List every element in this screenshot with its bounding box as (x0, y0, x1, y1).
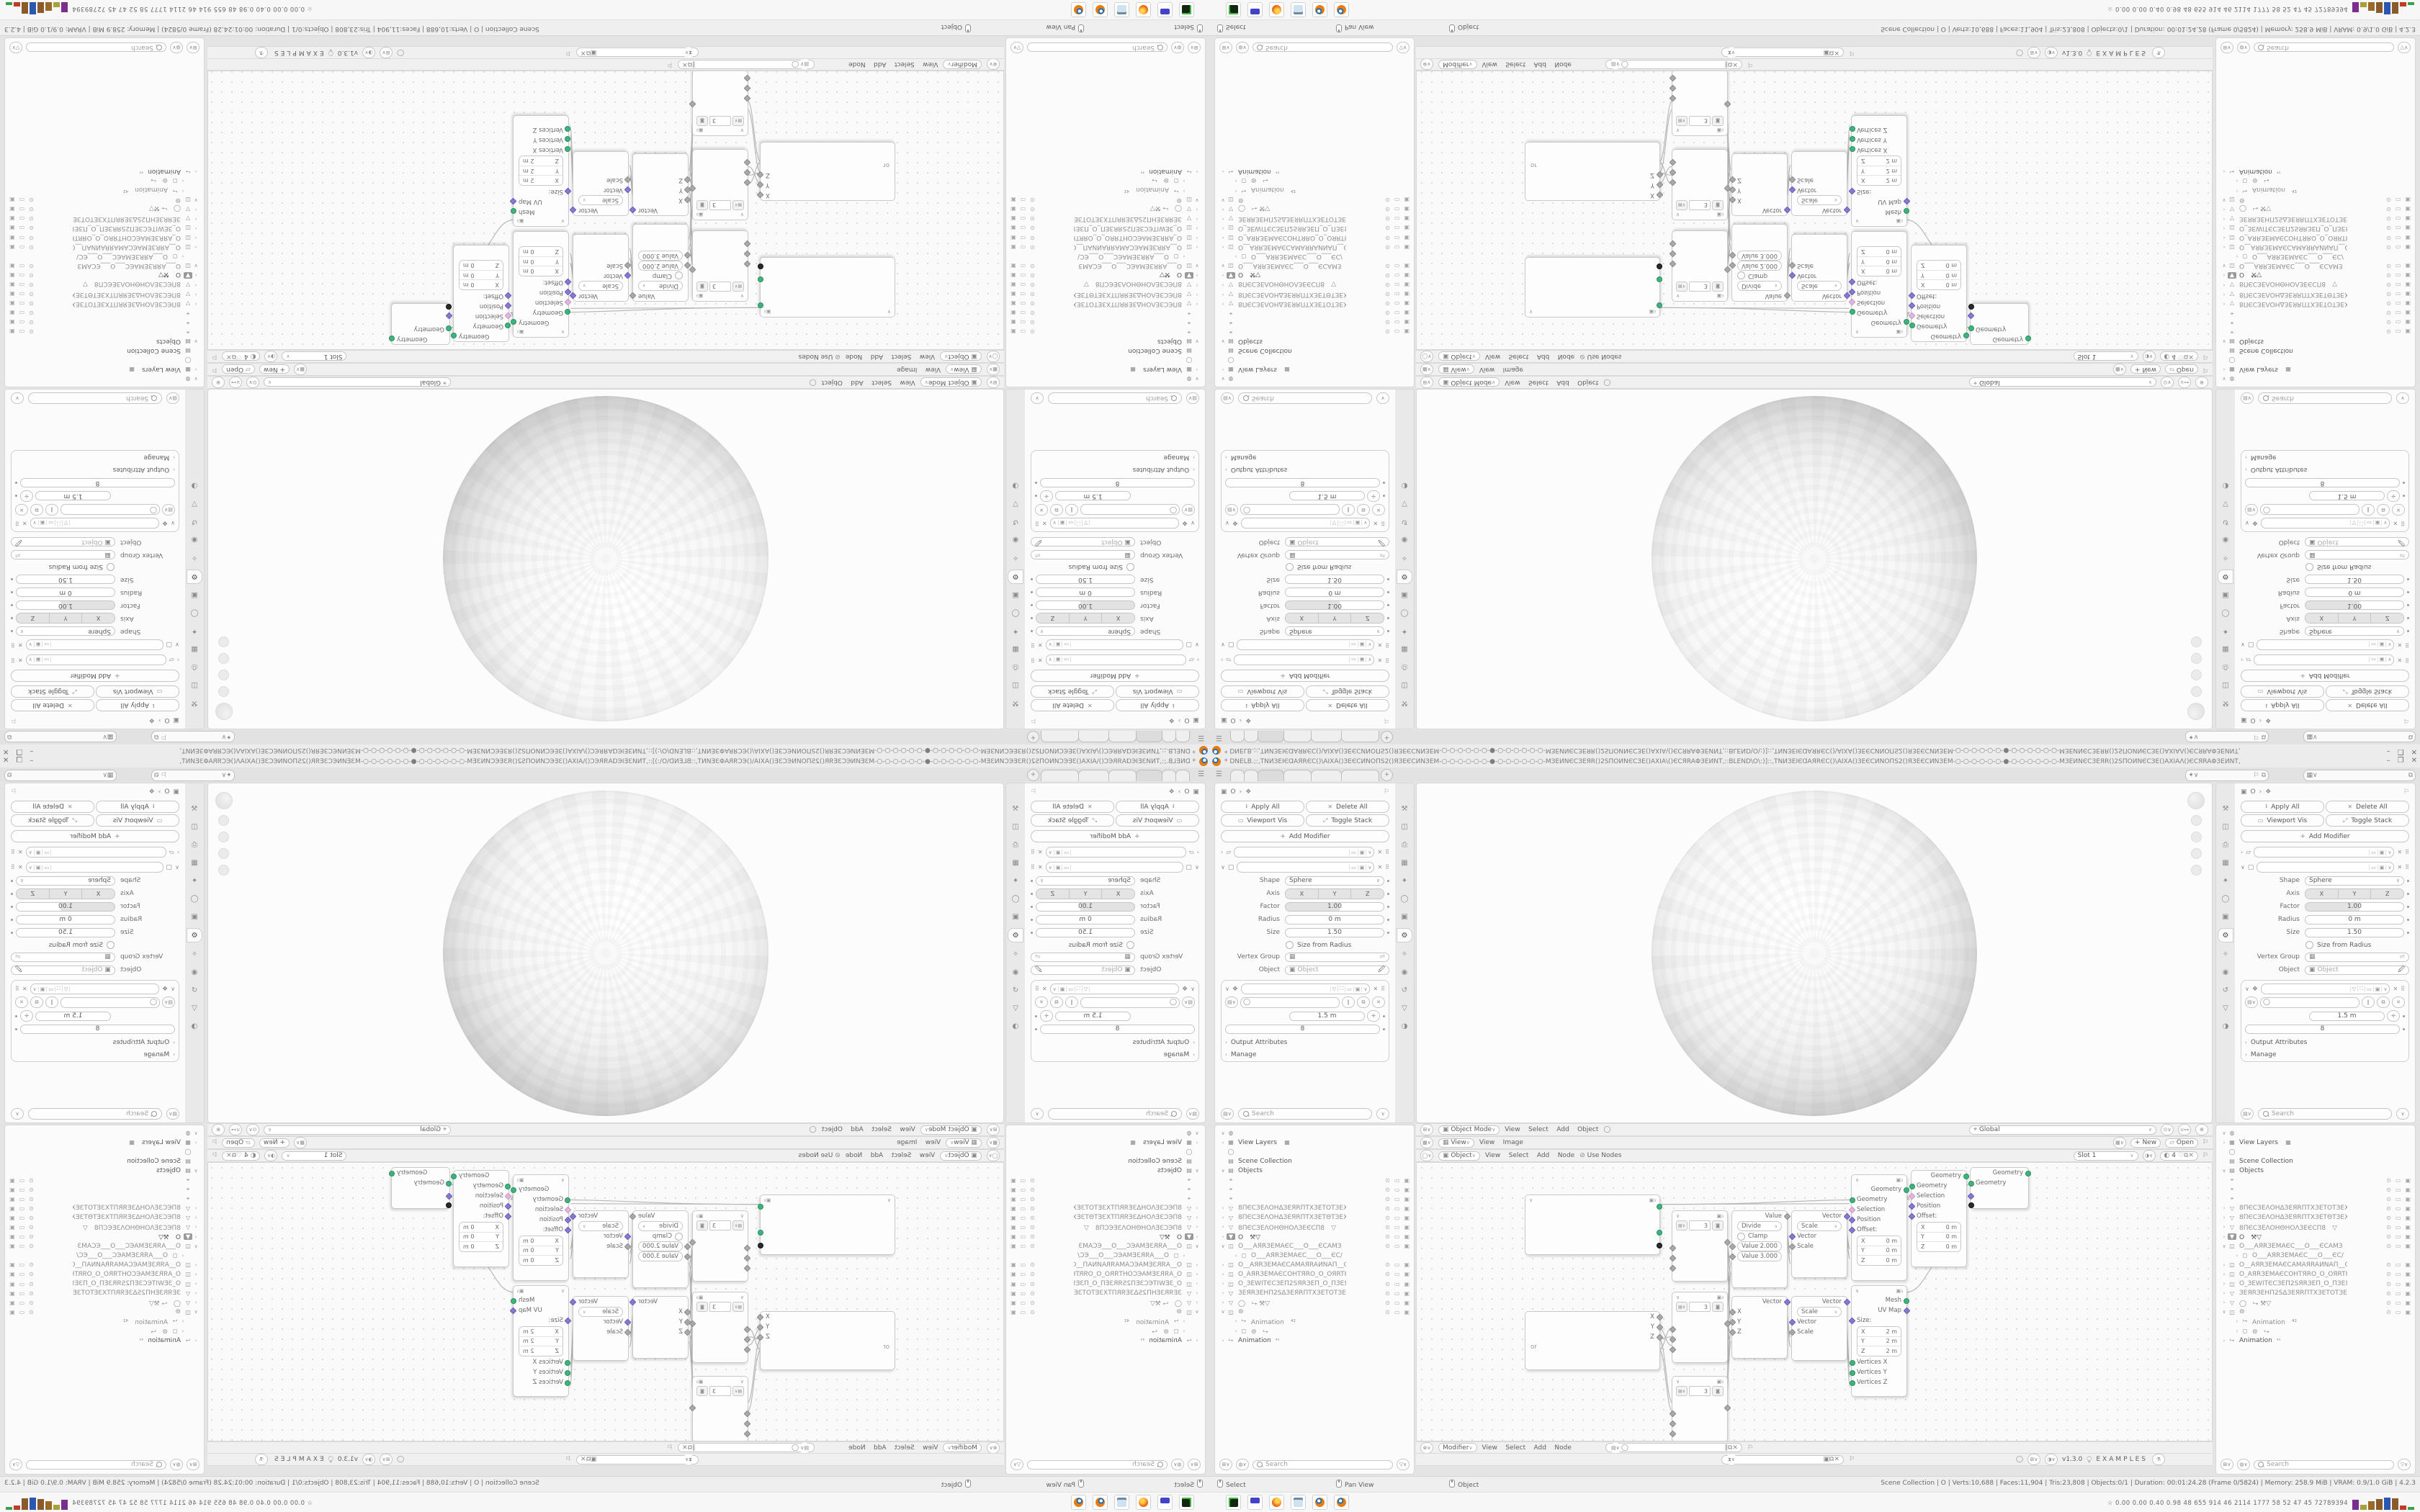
socket-g[interactable] (1904, 208, 1909, 214)
eye-icon[interactable]: ⊙ (1030, 206, 1035, 212)
eye-icon[interactable]: ⊙ (2386, 1224, 2391, 1230)
socket-g[interactable] (1850, 147, 1855, 153)
object-input[interactable]: ▣Object🖉 (1285, 538, 1389, 547)
editor-type-button[interactable]: ⊞∨ (2220, 42, 2233, 53)
eye-icon[interactable]: ⊙ (2386, 215, 2391, 222)
camera-icon[interactable]: ▣ (2405, 263, 2411, 269)
eye-icon[interactable]: ⊙ (29, 300, 34, 307)
snap-magnet-button[interactable]: ∪⊶ (229, 1124, 242, 1135)
properties-tab-material-icon[interactable]: ◑ (1397, 480, 1412, 492)
checkbox-icon[interactable] (675, 1233, 683, 1241)
socket-n[interactable] (629, 1213, 637, 1220)
shader-menus[interactable]: View Select Add Node (1485, 1152, 1574, 1159)
properties-tab-viewlayer-icon[interactable]: ▦ (187, 643, 202, 656)
outliner-row[interactable]: ›▼O ⚒▽⊙▭▣ (9, 1232, 200, 1241)
id-value[interactable]: 3 (1689, 1220, 1711, 1230)
taskbar-firefox-icon[interactable] (1269, 1495, 1284, 1510)
socket-n[interactable] (744, 1265, 751, 1272)
workspace-tab-1[interactable] (1244, 731, 1258, 742)
checkbox-icon[interactable] (1737, 1233, 1745, 1241)
camera-icon[interactable]: ▣ (9, 1215, 15, 1221)
socket-g[interactable] (511, 208, 517, 214)
outliner-row[interactable]: ∨◫⊜⊙▭▣ (1010, 1308, 1201, 1317)
size-input[interactable]: 1.50 (1285, 575, 1384, 585)
camera-icon[interactable]: ▣ (1010, 1215, 1016, 1221)
snap-magnet-button[interactable]: ∪⊶ (2178, 1124, 2191, 1135)
socket-v[interactable] (1843, 1299, 1850, 1306)
options-button[interactable]: ∨ (1376, 392, 1389, 404)
screen-icon[interactable]: ▭ (1021, 1261, 1026, 1268)
camera-icon[interactable]: ▣ (9, 1205, 15, 1212)
eye-icon[interactable]: ⊙ (1030, 263, 1035, 269)
eye-icon[interactable]: ⊙ (1385, 1290, 1390, 1297)
eye-icon[interactable]: ⊙ (1030, 225, 1035, 231)
socket-n[interactable] (744, 1255, 751, 1262)
node-vector-table[interactable]: X2 mY2 mZ2 m (1857, 156, 1901, 186)
socket-n[interactable] (744, 1431, 751, 1438)
size-from-radius-toggle[interactable]: Size from Radius (11, 563, 115, 571)
modifier-name-field[interactable]: ⧗∨▣⧉✕ (576, 48, 699, 58)
node-combine-xyz[interactable]: VectorXYZ (1731, 1296, 1788, 1359)
expand-arrow-icon[interactable]: ∨ (1219, 263, 1227, 269)
visibility-toggles[interactable]: ⊙▭▣ (1010, 1196, 1035, 1202)
visibility-toggles[interactable]: ⊙▭▣ (1385, 244, 1410, 251)
properties-tab-data-icon[interactable]: ▽ (1397, 1002, 1412, 1014)
screen-icon[interactable]: ▭ (2396, 1215, 2401, 1221)
geonodes-count-input[interactable]: 8 (1225, 1025, 1380, 1034)
properties-tab-particles-icon[interactable]: ✧ (187, 948, 202, 960)
taskbar-blender-icon[interactable] (1312, 2, 1327, 17)
socket-v[interactable] (446, 312, 453, 320)
node-cube[interactable]: ∨▣₃MeshUV MapSize:X2 mY2 mZ2 mVertices X… (1851, 1285, 1907, 1397)
outliner-row[interactable]: ›◻⊜ ⮡ (2220, 176, 2411, 186)
factor-slider[interactable]: 1.00 (1036, 902, 1135, 912)
screen-icon[interactable]: ▭ (19, 1233, 25, 1240)
node-vector-table[interactable]: X0 mY0 mZ0 m (519, 247, 563, 277)
expand-arrow-icon[interactable]: › (1232, 253, 1240, 259)
visibility-toggles[interactable]: ⊙▭▣ (1010, 1271, 1035, 1277)
visibility-toggles[interactable]: ⊙▭▣ (9, 1215, 34, 1221)
editor-type-button[interactable]: ⊞∨ (187, 1459, 200, 1470)
socket-g[interactable] (511, 319, 517, 325)
filter-button[interactable]: ▽∨ (9, 1459, 22, 1470)
outliner-objects[interactable]: ∨▤Objects (2220, 1166, 2411, 1175)
camera-icon[interactable]: ▣ (2405, 197, 2411, 203)
visibility-toggles[interactable]: ⊙▭▣ (1385, 206, 1410, 212)
eye-icon[interactable]: ⊙ (1385, 328, 1390, 335)
visibility-toggles[interactable]: ⊙▭▣ (9, 244, 34, 251)
mode-select[interactable]: ▣ Object Mode∨ (920, 378, 982, 387)
socket-n[interactable] (744, 1421, 751, 1428)
socket-n[interactable] (1788, 1329, 1796, 1336)
eye-icon[interactable]: ⊙ (1385, 282, 1390, 288)
editor-type-button[interactable]: ⊞∨ (1420, 1124, 1433, 1135)
taskbar-blender-icon[interactable] (1071, 2, 1086, 17)
screen-icon[interactable]: ▭ (1021, 272, 1026, 279)
object-input[interactable]: ▣Object🖉 (11, 966, 115, 975)
size-from-radius-toggle[interactable]: Size from Radius (1286, 941, 1389, 949)
section-output-attributes[interactable]: ›Output Attributes (2245, 466, 2405, 473)
screen-icon[interactable]: ▭ (2396, 291, 2401, 297)
eye-icon[interactable]: ⊙ (2386, 291, 2391, 297)
socket-v[interactable] (1848, 1227, 1855, 1234)
screen-icon[interactable]: ▭ (2396, 1290, 2401, 1297)
camera-icon[interactable]: ▣ (1404, 310, 1410, 316)
viewport-vis-button[interactable]: ▭Viewport Vis (1116, 814, 1199, 827)
add-modifier-button[interactable]: +Add Modifier (1221, 670, 1389, 682)
outliner-row[interactable]: ∨◫O___AЯRЗЕMAЄC___O___ЄCAMЗ⊙▭▣ (1010, 261, 1201, 271)
axis-toggle-icon[interactable]: ✛ (1367, 490, 1380, 502)
editor-type-button[interactable]: ▤∨ (2241, 392, 2254, 404)
properties-tab-world-icon[interactable]: ◯ (1008, 607, 1023, 620)
properties-tab-output-icon[interactable]: ⎙ (1008, 661, 1023, 674)
expand-arrow-icon[interactable]: › (192, 282, 200, 288)
screen-icon[interactable]: ▭ (1021, 1215, 1026, 1221)
socket-n[interactable] (744, 159, 751, 166)
node-math-divide[interactable]: ValueDivide∨ClampValue2.000Value3.000 (1731, 224, 1788, 302)
visibility-toggles[interactable]: ⊙▭▣ (1385, 272, 1410, 279)
node-header[interactable]: ∨▣₃ (1672, 1377, 1727, 1386)
outliner-row[interactable]: ›◻O___AЯRЗЕMAЄC___O___ЄC/ (1219, 1251, 1410, 1260)
socket-g[interactable] (758, 1204, 764, 1210)
properties-tab-world-icon[interactable]: ◯ (1008, 892, 1023, 905)
expand-arrow-icon[interactable]: › (2233, 1328, 2241, 1334)
properties-tab-particles-icon[interactable]: ✧ (1397, 552, 1412, 564)
camera-icon[interactable]: ▣ (1404, 1205, 1410, 1212)
screen-icon[interactable]: ▭ (1021, 1300, 1026, 1306)
snap-magnet-button[interactable]: ∪⊶ (229, 377, 242, 388)
filter-button[interactable]: ▽∨ (1010, 42, 1023, 53)
outliner-row[interactable]: ›▼O ⚒▽⊙▭▣ (2220, 271, 2411, 280)
size-from-radius-toggle[interactable]: Size from Radius (1031, 941, 1134, 949)
world-icon[interactable]: ◯ (1227, 357, 1235, 364)
node-header[interactable]: ∨▣₃ (1852, 1286, 1906, 1295)
eye-icon[interactable]: ⊙ (29, 197, 34, 203)
screen-icon[interactable]: ▭ (2396, 263, 2401, 269)
node-vector-math-scale[interactable]: VectorScale∨VectorScale (1791, 1210, 1847, 1278)
eye-icon[interactable]: ⊙ (29, 244, 34, 251)
move-gizmo[interactable] (2191, 832, 2202, 842)
image-menus[interactable]: View Image (1479, 366, 1523, 373)
expand-arrow-icon[interactable]: › (2220, 207, 2228, 212)
screen-icon[interactable]: ▭ (2396, 310, 2401, 316)
screen-icon[interactable]: ▭ (1021, 1196, 1026, 1202)
workspace-tab-5[interactable] (1041, 770, 1079, 781)
screen-icon[interactable]: ▭ (2396, 1233, 2401, 1240)
section-output-attributes[interactable]: ›Output Attributes (1225, 1039, 1385, 1046)
node-id-node[interactable]: ∨▣₃▤∨3◙ (692, 149, 748, 220)
node-set-position[interactable]: ∨▣₃GeometryGeometrySelectionPositionOffs… (1851, 231, 1907, 338)
outliner-view-layers[interactable]: ›▦View Layers▦ (1010, 365, 1201, 374)
eye-icon[interactable]: ⊙ (1030, 1243, 1035, 1249)
screen-icon[interactable]: ▭ (2396, 1271, 2401, 1277)
screen-icon[interactable]: ▭ (2396, 197, 2401, 203)
socket-g[interactable] (565, 309, 571, 315)
geonodes-slot[interactable]: ∨❖ ▽⛶▭▣∨✕⠿ (15, 984, 175, 994)
expand-arrow-icon[interactable]: › (2220, 1281, 2228, 1287)
eye-icon[interactable]: ⊙ (2386, 1271, 2391, 1277)
examples-menu[interactable]: EXAMPLES (272, 1456, 324, 1463)
properties-tab-object-icon[interactable]: ▣ (187, 910, 202, 923)
enum-select[interactable]: Scale∨ (578, 195, 623, 205)
socket-g[interactable] (1963, 1174, 1969, 1179)
expand-arrow-icon[interactable]: › (192, 1281, 200, 1287)
node-id-row[interactable]: ▤∨3◙ (693, 200, 748, 210)
camera-icon[interactable]: ▣ (1404, 1233, 1410, 1240)
node-vector-table[interactable]: X2 mY2 mZ2 m (519, 156, 563, 186)
expand-arrow-icon[interactable]: › (2220, 1262, 2228, 1268)
taskbar-save-icon[interactable] (1247, 2, 1263, 17)
delete-all-button[interactable]: ✕Delete All (2326, 801, 2409, 813)
camera-icon[interactable]: ▣ (9, 1187, 15, 1193)
visibility-toggles[interactable]: ⊙▭▣ (1385, 1290, 1410, 1297)
pin-icon[interactable]: ⚐ (565, 1456, 571, 1463)
socket-n[interactable] (684, 1254, 691, 1261)
annotate-icon[interactable]: ◯ (810, 379, 817, 386)
socket-g[interactable] (565, 1360, 571, 1366)
socket-n[interactable] (744, 240, 751, 248)
delete-all-button[interactable]: ✕Delete All (1031, 801, 1114, 813)
eye-icon[interactable]: ⊙ (1385, 272, 1390, 279)
outliner-objects[interactable]: ∨▤Objects (9, 1166, 200, 1175)
eye-icon[interactable]: ⊙ (29, 319, 34, 325)
outliner-row[interactable]: ∨◫⊜⊙▭▣ (2220, 1308, 2411, 1317)
visibility-toggles[interactable]: ⊙▭▣ (1010, 1224, 1035, 1230)
screen-icon[interactable]: ▭ (2396, 244, 2401, 251)
properties-tab-scene-icon[interactable]: ✦ (1008, 625, 1023, 638)
properties-tab-viewlayer-icon[interactable]: ▦ (1397, 643, 1412, 656)
expand-arrow-icon[interactable]: › (2220, 1224, 2228, 1230)
pivot-button[interactable]: ⊙∨ (2161, 1124, 2174, 1135)
add-modifier-button[interactable]: +Add Modifier (11, 670, 179, 682)
socket-g[interactable] (390, 1171, 395, 1176)
workspace-tab-0[interactable] (1175, 770, 1190, 781)
viewport-menus[interactable]: View Select Add Object (1505, 1126, 1598, 1133)
world-icon[interactable]: ◯ (2228, 1148, 2236, 1155)
outliner-row[interactable]: ›◻⊜ ⮡ (9, 1326, 200, 1336)
node-id-node[interactable]: ∨▣₃▤∨3◙ (692, 1210, 748, 1282)
radius-input[interactable]: 0 m (1285, 588, 1384, 598)
mode-select[interactable]: ▣ Object Mode∨ (1438, 378, 1500, 387)
expand-arrow-icon[interactable]: › (2220, 244, 2228, 250)
pin-icon[interactable]: ⚐ (565, 49, 571, 56)
outliner-row[interactable]: ›◻O___AЯRЗЕMAЄC___O___ЄC/ (1010, 252, 1201, 261)
outliner-row[interactable]: ›◻⊜ ⮡ (2220, 1326, 2411, 1336)
socket-g[interactable] (447, 1181, 452, 1187)
socket-v[interactable] (1788, 1319, 1796, 1326)
eye-icon[interactable]: ⊙ (1030, 1233, 1035, 1240)
expand-arrow-icon[interactable]: › (2220, 235, 2228, 240)
camera-icon[interactable]: ▣ (2405, 244, 2411, 251)
taskbar-calculator-icon[interactable] (1114, 2, 1129, 17)
socket-n[interactable] (757, 192, 764, 199)
camera-icon[interactable]: ▣ (2405, 272, 2411, 279)
screen-icon[interactable]: ▭ (1394, 244, 1400, 251)
filter-icon[interactable]: ◍ (184, 1130, 192, 1136)
navigation-gizmo[interactable] (215, 703, 233, 720)
screen-icon[interactable]: ▭ (1021, 282, 1026, 288)
socket-p[interactable] (1908, 1193, 1915, 1200)
workspace-tab-2[interactable] (1136, 770, 1162, 781)
factor-slider[interactable]: 1.00 (1285, 902, 1384, 912)
visibility-toggles[interactable]: ⊙▭▣ (9, 272, 34, 279)
expand-arrow-icon[interactable]: › (1193, 1281, 1201, 1287)
apply-all-button[interactable]: ⭳Apply All (2241, 801, 2324, 813)
viewport-menus[interactable]: View Select Add Object (822, 1126, 915, 1133)
screen-icon[interactable]: ▭ (2396, 1300, 2401, 1306)
filter-button[interactable]: ▽∨ (1010, 1459, 1023, 1470)
breadcrumb-object[interactable]: O (2251, 788, 2256, 796)
camera-icon[interactable]: ▣ (2405, 206, 2411, 212)
vertex-group-input[interactable]: ▦⇌ (1285, 953, 1389, 962)
properties-tab-object-icon[interactable]: ▣ (2218, 910, 2233, 923)
add-workspace-button[interactable]: + (1381, 769, 1393, 781)
properties-tab-object-icon[interactable]: ▣ (1008, 589, 1023, 602)
socket-v[interactable] (565, 1227, 572, 1234)
socket-n[interactable] (1669, 1336, 1676, 1344)
slot-select[interactable]: Slot 1∨ (2074, 352, 2138, 361)
eye-icon[interactable]: ⊙ (29, 1215, 34, 1221)
screen-icon[interactable]: ▭ (19, 1261, 25, 1268)
outliner-scene-collection[interactable]: ▤Scene Collection (1010, 1156, 1201, 1166)
eye-icon[interactable]: ⊙ (1030, 1300, 1035, 1306)
visibility-toggles[interactable]: ⊙▭▣ (9, 197, 34, 203)
editor-type-button[interactable]: ▦∨ (987, 364, 1000, 375)
node-vector-table[interactable]: X0 mY0 mZ0 m (459, 1222, 503, 1252)
screen-icon[interactable]: ▭ (1394, 1290, 1400, 1297)
socket-v[interactable] (1783, 1299, 1791, 1306)
apply-all-button[interactable]: ⭳Apply All (1221, 801, 1304, 813)
geonodes-slot[interactable]: ∨❖ ▽⛶▭▣∨✕⠿ (2245, 518, 2405, 528)
camera-icon[interactable]: ▣ (9, 197, 15, 203)
camera-icon[interactable]: ▣ (1404, 1196, 1410, 1202)
outliner-row[interactable]: ∨◫⊜⊙▭▣ (2220, 195, 2411, 204)
camera-icon[interactable]: ▣ (1404, 319, 1410, 325)
editor-type-button[interactable]: ▤∨ (1221, 1108, 1234, 1120)
eye-icon[interactable]: ⊙ (1385, 1224, 1390, 1230)
expand-arrow-icon[interactable]: › (1180, 1253, 1188, 1259)
properties-tab-physics-icon[interactable]: ◉ (1008, 966, 1023, 978)
visibility-toggles[interactable]: ⊙▭▣ (1010, 197, 1035, 203)
camera-icon[interactable]: ▣ (1010, 1271, 1016, 1277)
eye-icon[interactable]: ⊙ (1030, 1177, 1035, 1184)
expand-arrow-icon[interactable]: › (1193, 1290, 1201, 1296)
expand-arrow-icon[interactable]: › (1219, 292, 1227, 297)
expand-arrow-icon[interactable]: › (2220, 225, 2228, 231)
copy-icon[interactable]: ⧉ (2377, 996, 2390, 1008)
visibility-toggles[interactable]: ⊙▭▣ (1385, 1309, 1410, 1315)
node-separate-xyz[interactable]: XYZor (760, 142, 895, 201)
eye-icon[interactable]: ⊙ (1030, 244, 1035, 251)
close-button[interactable]: ✕ (3, 757, 9, 767)
modifier-name-field[interactable]: ⧗∨▣⧉✕ (1721, 1455, 1844, 1464)
node-set-position[interactable]: GeometryGeometrySelectionPositionOffset:… (453, 1170, 509, 1267)
unlink-icon[interactable]: ✕ (15, 996, 28, 1008)
factor-slider[interactable]: 1.00 (2305, 902, 2404, 912)
node-header[interactable]: ∨▣₃ (1525, 1195, 1659, 1205)
eye-icon[interactable]: ⊙ (1385, 1309, 1390, 1315)
eye-icon[interactable]: ⊙ (1030, 1281, 1035, 1287)
node-header[interactable]: ∨▣₃ (761, 1195, 895, 1205)
socket-g[interactable] (565, 1197, 571, 1203)
expand-arrow-icon[interactable]: › (2220, 282, 2228, 288)
screen-icon[interactable]: ▭ (2396, 328, 2401, 335)
properties-tab-modifier-icon[interactable]: ⚙ (187, 928, 202, 942)
visibility-toggles[interactable]: ⊙▭▣ (9, 1233, 34, 1240)
socket-g[interactable] (565, 1380, 571, 1386)
outliner-row[interactable]: ›◫O__AЯRЗЕMAЄCAMAЯRAИNAП__O⊙▭▣ (2220, 1260, 2411, 1269)
properties-tab-tool-icon[interactable]: ⚒ (187, 697, 202, 710)
socket-k[interactable] (758, 1243, 764, 1248)
expand-arrow-icon[interactable]: › (2220, 1234, 2228, 1240)
eye-icon[interactable]: ⊙ (2386, 1300, 2391, 1306)
viewport-vis-button[interactable]: ▭Viewport Vis (96, 685, 179, 698)
radius-input[interactable]: 0 m (16, 588, 115, 598)
zoom-gizmo[interactable] (219, 686, 230, 697)
expand-arrow-icon[interactable]: › (2220, 1272, 2228, 1277)
eye-icon[interactable]: ⊙ (1385, 263, 1390, 269)
camera-icon[interactable]: ▣ (1404, 1309, 1410, 1315)
outliner-row[interactable]: ∨◫⊜⊙▭▣ (9, 195, 200, 204)
camera-icon[interactable]: ▣ (1010, 1187, 1016, 1193)
display-mode-button[interactable]: ◍∨ (1171, 1459, 1184, 1470)
socket-n[interactable] (684, 252, 691, 259)
eye-icon[interactable]: ⊙ (2386, 225, 2391, 231)
navigation-gizmo[interactable] (2187, 792, 2205, 809)
screen-icon[interactable]: ▭ (2396, 1196, 2401, 1202)
properties-tab-constraints-icon[interactable]: ↺ (187, 984, 202, 996)
outliner-row[interactable]: ›▽◯ ⮡ ⚒▽⊙▭▣ (2220, 204, 2411, 214)
eye-icon[interactable]: ⊙ (29, 263, 34, 269)
outliner-row[interactable]: ⌖⊙▭▣ (1219, 308, 1410, 318)
properties-tab-scene-icon[interactable]: ✦ (1397, 625, 1412, 638)
camera-icon[interactable]: ▣ (2405, 1290, 2411, 1297)
pin-icon[interactable]: ⚐ (1384, 716, 1389, 724)
socket-n[interactable] (624, 176, 632, 184)
screen-icon[interactable]: ▭ (2396, 206, 2401, 212)
experimental-button[interactable]: ⚗ (255, 1454, 268, 1465)
outliner-row[interactable]: ∨◫O___AЯRЗЕMAЄC___O___ЄCAMЗ⊙▭▣ (9, 1241, 200, 1251)
expand-arrow-icon[interactable]: › (2233, 1253, 2241, 1259)
editor-type-button[interactable]: ▤∨ (1221, 392, 1234, 404)
outliner-row[interactable]: ⌖⊙▭▣ (9, 1175, 200, 1184)
properties-tab-material-icon[interactable]: ◑ (1008, 1020, 1023, 1032)
delete-all-button[interactable]: ✕Delete All (11, 699, 94, 711)
toggle-stack-button[interactable]: ⤢Toggle Stack (2326, 814, 2409, 827)
expand-arrow-icon[interactable]: › (1219, 1224, 1227, 1230)
screen-icon[interactable]: ▭ (19, 244, 25, 251)
restore-button[interactable]: ❐ (16, 745, 22, 755)
modifier-slot[interactable]: ›▱ ▭▣∨✕⠿ (1031, 847, 1199, 858)
filter-button[interactable]: ▽∨ (1397, 1459, 1410, 1470)
socket-n[interactable] (1729, 1254, 1736, 1261)
toggle-stack-button[interactable]: ⤢Toggle Stack (11, 814, 94, 827)
outliner-search-input[interactable]: Search (26, 1460, 166, 1470)
socket-v[interactable] (505, 292, 512, 300)
socket-n[interactable] (1669, 1431, 1676, 1438)
screen-icon[interactable]: ▭ (19, 225, 25, 231)
properties-tab-data-icon[interactable]: ▽ (1397, 498, 1412, 510)
expand-arrow-icon[interactable]: › (179, 1318, 187, 1324)
material-datablock-button[interactable]: ◑∨ (2143, 351, 2156, 362)
outliner-objects[interactable]: ∨▤Objects (1219, 337, 1410, 346)
camera-icon[interactable]: ▣ (9, 300, 15, 307)
camera-icon[interactable]: ▣ (1404, 1177, 1410, 1184)
expand-arrow-icon[interactable]: › (192, 1215, 200, 1220)
expand-arrow-icon[interactable]: › (1219, 235, 1227, 240)
zoom-gizmo[interactable] (219, 815, 230, 826)
camera-icon[interactable]: ▣ (2405, 1281, 2411, 1287)
